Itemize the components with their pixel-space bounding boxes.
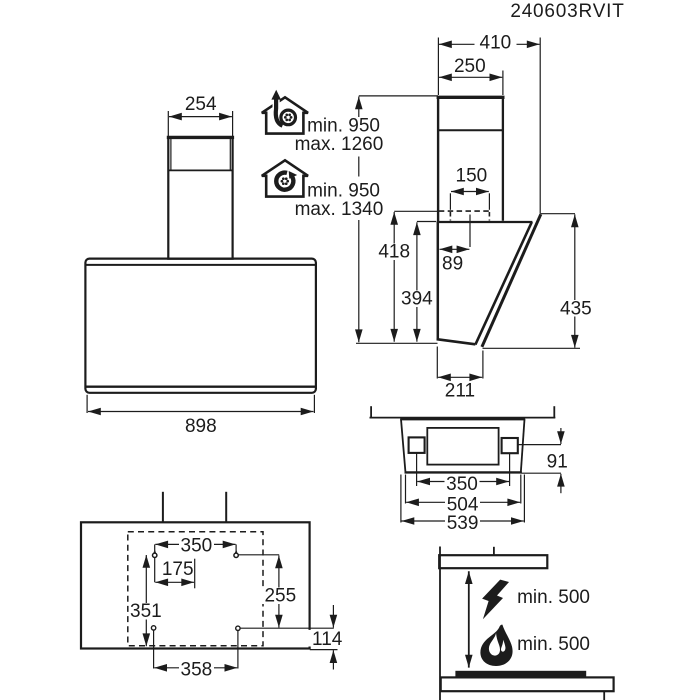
svg-text:211: 211 <box>445 380 475 401</box>
svg-text:350: 350 <box>446 474 478 495</box>
svg-text:350: 350 <box>181 535 213 556</box>
svg-text:255: 255 <box>264 586 296 607</box>
svg-text:898: 898 <box>185 416 217 437</box>
svg-text:250: 250 <box>454 56 486 77</box>
svg-text:254: 254 <box>185 94 217 115</box>
svg-text:89: 89 <box>442 254 463 275</box>
svg-text:418: 418 <box>378 242 410 263</box>
svg-text:175: 175 <box>162 559 194 580</box>
svg-text:410: 410 <box>480 33 512 54</box>
svg-text:539: 539 <box>447 513 479 534</box>
svg-text:394: 394 <box>401 289 433 310</box>
svg-text:max. 1340: max. 1340 <box>295 199 384 220</box>
svg-text:91: 91 <box>547 452 568 473</box>
svg-text:min. 500: min. 500 <box>517 634 590 655</box>
svg-text:114: 114 <box>312 629 343 650</box>
svg-text:150: 150 <box>456 165 488 186</box>
svg-text:358: 358 <box>181 660 213 681</box>
svg-text:240603RVIT: 240603RVIT <box>510 1 624 22</box>
svg-text:435: 435 <box>560 298 592 319</box>
svg-text:max. 1260: max. 1260 <box>295 134 384 155</box>
svg-text:min. 500: min. 500 <box>517 587 590 608</box>
svg-text:351: 351 <box>130 601 162 622</box>
